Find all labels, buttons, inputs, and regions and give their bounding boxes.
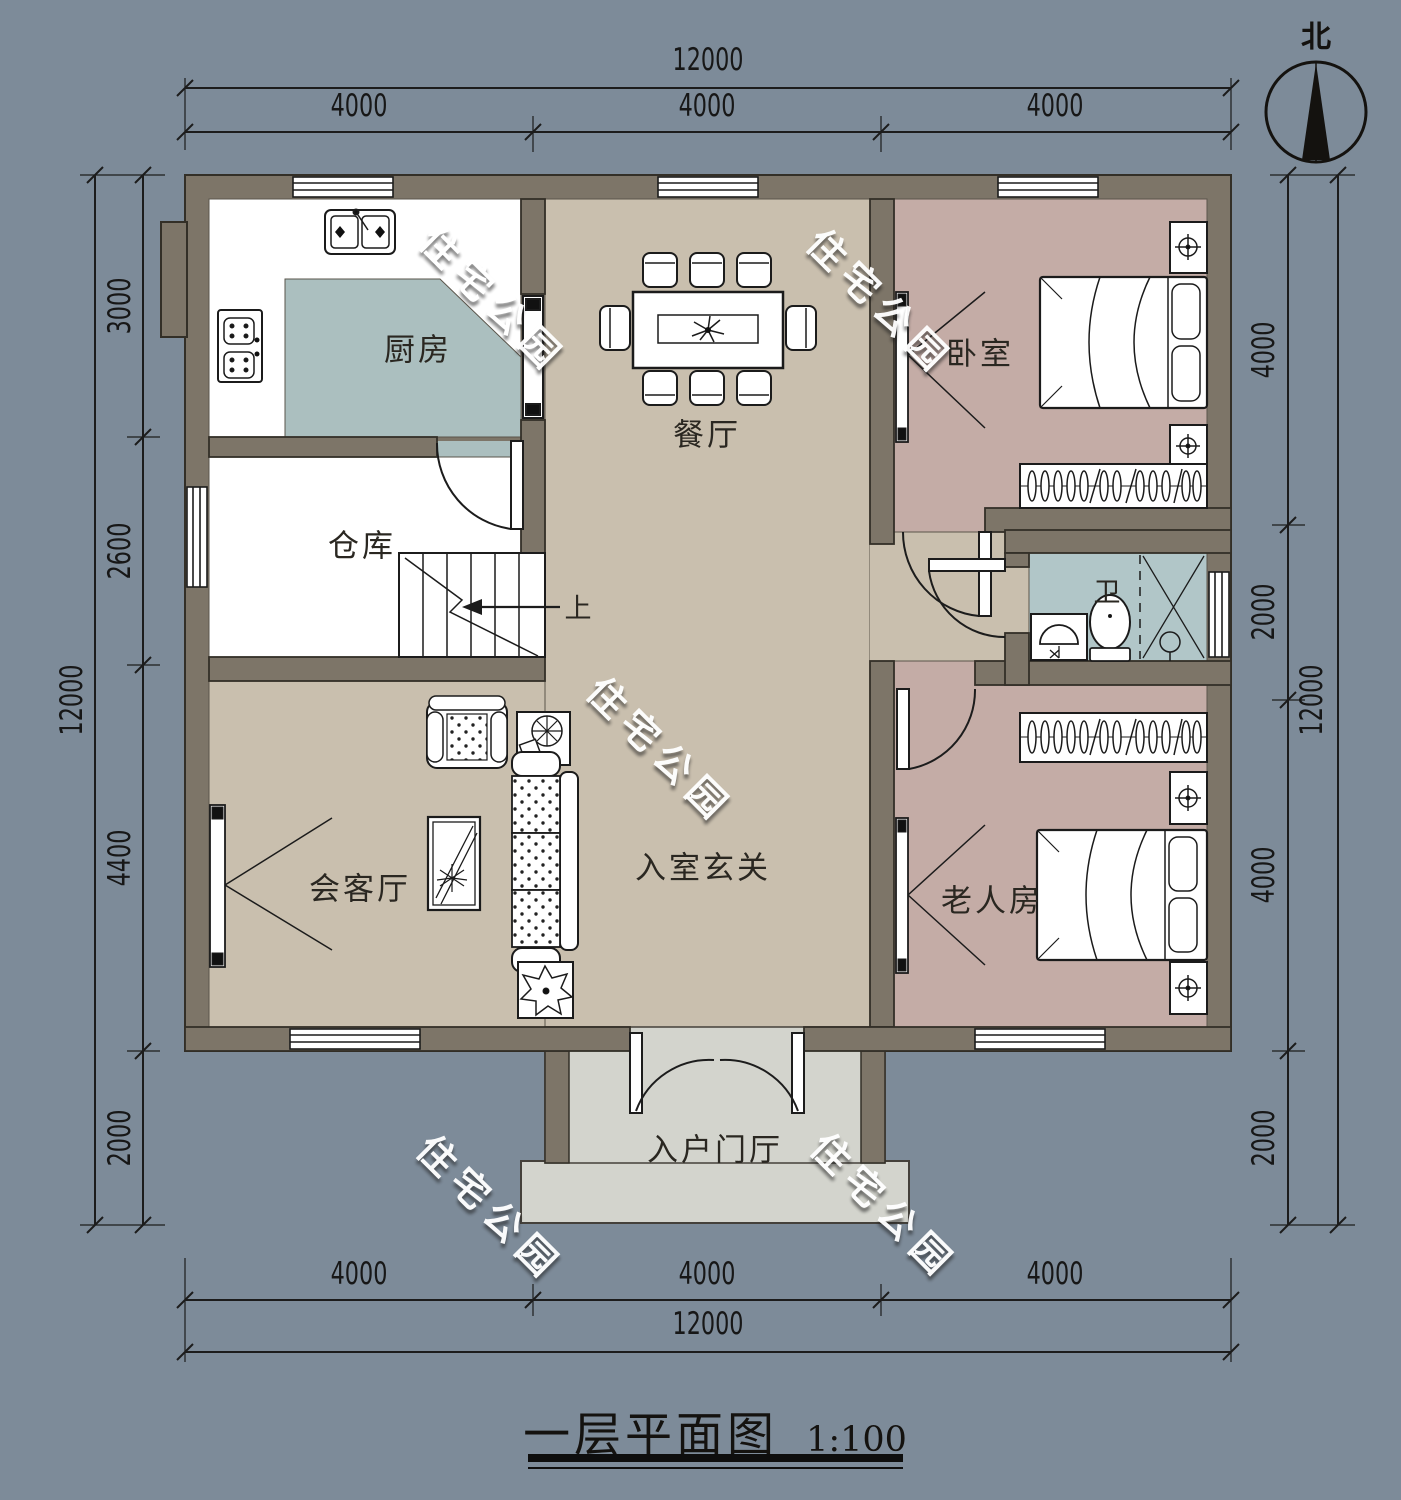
window-kitchen [293, 177, 393, 197]
window-bathroom [1209, 572, 1229, 657]
room-label-elder-room: 老人房 [941, 876, 1043, 921]
dim-right-total: 12000 [1294, 664, 1330, 735]
stairs-up-label: 上 [565, 587, 592, 626]
wardrobe [1020, 464, 1207, 508]
bed [1037, 830, 1207, 960]
armchair [427, 696, 507, 768]
room-label-entry-hall: 入室玄关 [635, 843, 771, 888]
sofa [512, 752, 578, 972]
room-label-entry-foyer: 入户门厅 [647, 1125, 783, 1170]
nightstand [1170, 962, 1207, 1014]
dim-right-seg-2: 4000 [1246, 847, 1282, 904]
window-dining [658, 177, 758, 197]
nightstand [1170, 772, 1207, 824]
nightstand [1170, 222, 1207, 273]
title-underline-thick [528, 1454, 903, 1462]
dim-right-seg-3: 2000 [1246, 1110, 1282, 1167]
room-label-storage: 仓库 [328, 521, 396, 566]
dim-left-seg-1: 2600 [102, 523, 138, 580]
dim-right-seg-1: 2000 [1246, 584, 1282, 641]
stairs [399, 553, 560, 657]
stove [218, 310, 262, 382]
dim-bottom-seg-0: 4000 [331, 1256, 388, 1292]
room-label-kitchen: 厨房 [384, 325, 452, 370]
dim-top-seg-0: 4000 [331, 88, 388, 124]
nightstand [1170, 425, 1207, 467]
room-label-dining: 餐厅 [673, 410, 741, 455]
dim-right-seg-0: 4000 [1246, 322, 1282, 379]
window-bedroom [998, 177, 1098, 197]
dim-left-total: 12000 [54, 664, 90, 735]
dim-left-seg-0: 3000 [102, 278, 138, 335]
compass-icon [1266, 62, 1366, 162]
coffee-table [428, 817, 480, 910]
window-living [290, 1029, 420, 1049]
plant [518, 962, 573, 1018]
bath-sink [1031, 614, 1087, 660]
north-label: 北 [1301, 12, 1331, 56]
sink [325, 210, 395, 255]
floor-plan-sheet: { "title": {"name": "一层平面图", "scale": "1… [0, 0, 1401, 1500]
wardrobe [1020, 713, 1207, 762]
dim-top-total: 12000 [672, 42, 743, 78]
title-underline-thin [528, 1467, 903, 1469]
room-label-living: 会客厅 [309, 864, 411, 909]
room-label-bathroom: 卫 [1094, 571, 1121, 610]
dim-top-seg-2: 4000 [1027, 88, 1084, 124]
window-storage [187, 487, 207, 587]
dim-bottom-seg-2: 4000 [1027, 1256, 1084, 1292]
dim-top-seg-1: 4000 [679, 88, 736, 124]
window-elder [975, 1029, 1105, 1049]
dim-left-seg-3: 2000 [102, 1110, 138, 1167]
dim-bottom-seg-1: 4000 [679, 1256, 736, 1292]
dim-bottom-total: 12000 [672, 1306, 743, 1342]
bed [1040, 277, 1207, 408]
dim-left-seg-2: 4400 [102, 830, 138, 887]
